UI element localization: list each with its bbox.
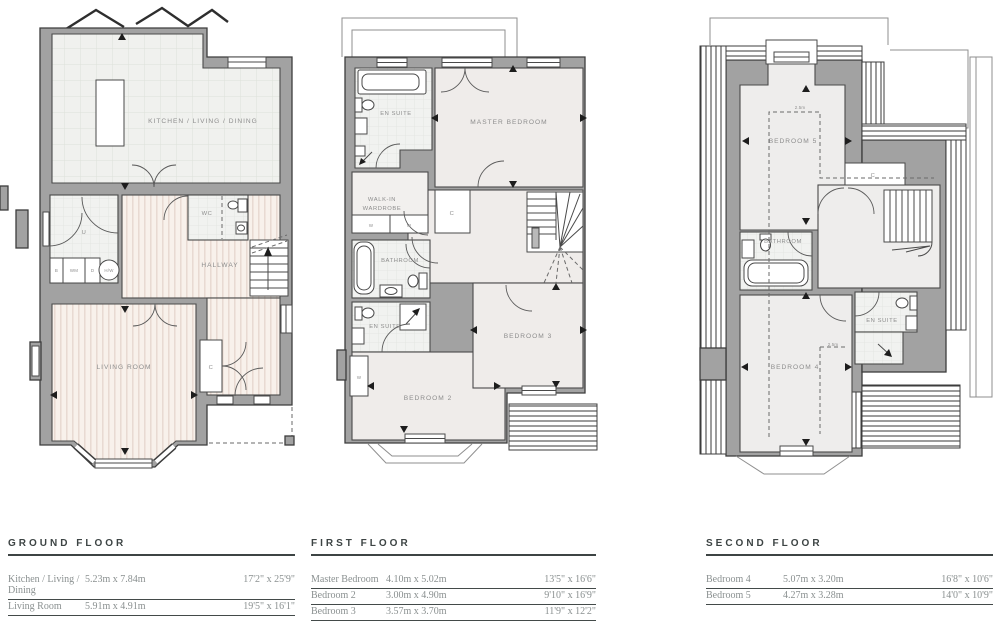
bedroom3-label: BEDROOM 3	[504, 333, 553, 340]
ground-floor-table-title: GROUND FLOOR	[8, 538, 295, 554]
room-size-metric: 3.00m x 4.90m	[386, 590, 504, 601]
walkin-label-1: WALK-IN	[368, 197, 396, 203]
table-row: Kitchen / Living / Dining 5.23m x 7.84m …	[8, 573, 295, 600]
bedroom4-label: BEDROOM 4	[771, 364, 820, 371]
floorplans-canvas: KITCHEN / LIVING / DINING U WC HALLWAY L…	[0, 0, 1002, 535]
roof-outline-below	[342, 18, 517, 57]
svg-text:H/W: H/W	[104, 268, 114, 273]
second-floor-table-title: SECOND FLOOR	[706, 538, 993, 554]
room-size-imperial: 17'2" x 25'9"	[203, 574, 295, 585]
room-name: Master Bedroom	[311, 574, 386, 585]
table-row: Master Bedroom 4.10m x 5.02m 13'5" x 16'…	[311, 573, 596, 589]
ensuite-mid-label: EN SUITE	[369, 324, 401, 330]
second-bay-outline	[736, 456, 850, 474]
table-rule	[8, 554, 295, 556]
room-name: Living Room	[8, 601, 85, 612]
room-size-metric: 4.10m x 5.02m	[386, 574, 504, 585]
bifold-doors-open	[66, 8, 228, 29]
bathroom-label: BATHROOM	[381, 258, 419, 264]
first-floor-plan: EN SUITE MASTER BEDROOM WALK-IN WARDROBE…	[337, 18, 597, 463]
first-closet-label: C	[450, 211, 455, 217]
ensuite-master-label: EN SUITE	[380, 111, 412, 117]
second-roof-outline-right	[878, 50, 968, 128]
svg-text:WM: WM	[70, 268, 78, 273]
room-size-imperial: 19'5" x 16'1"	[203, 601, 295, 612]
second-chimney	[700, 348, 726, 380]
room-size-metric: 5.23m x 7.84m	[85, 574, 203, 585]
flat-roof-hatch	[509, 404, 597, 450]
room-name: Kitchen / Living / Dining	[8, 574, 85, 596]
headroom-mid-label: 2.5m	[828, 342, 839, 347]
living-room-floor	[52, 304, 196, 460]
bedroom5-label: BEDROOM 5	[769, 138, 818, 145]
wc-label: WC	[202, 211, 213, 217]
utility-label: U	[82, 230, 87, 236]
room-name: Bedroom 2	[311, 590, 386, 601]
room-size-imperial: 9'10" x 16'9"	[504, 590, 596, 601]
svg-text:B: B	[55, 268, 58, 273]
table-row: Bedroom 2 3.00m x 4.90m 9'10" x 16'9"	[311, 589, 596, 605]
bedroom2-label: BEDROOM 2	[404, 395, 453, 402]
patio-outline	[209, 407, 294, 445]
ground-floor-table: GROUND FLOOR Kitchen / Living / Dining 5…	[8, 538, 295, 616]
bay-roof-outline	[368, 444, 482, 463]
table-row: Living Room 5.91m x 4.91m 19'5" x 16'1"	[8, 600, 295, 616]
table-row: Bedroom 3 3.57m x 3.70m 11'9" x 12'2"	[311, 605, 596, 621]
first-floor-table: FIRST FLOOR Master Bedroom 4.10m x 5.02m…	[311, 538, 596, 621]
headroom-top-label: 2.5m	[795, 105, 806, 110]
second-ensuite-label: EN SUITE	[866, 318, 898, 324]
neighbour-roof-outline	[970, 57, 992, 397]
second-closet-label: C	[871, 173, 876, 179]
table-rule	[706, 554, 993, 556]
table-row: Bedroom 4 5.07m x 3.20m 16'8" x 10'6"	[706, 573, 993, 589]
first-floor-table-title: FIRST FLOOR	[311, 538, 596, 554]
table-row: Bedroom 5 4.27m x 3.28m 14'0" x 10'9"	[706, 589, 993, 605]
table-rule	[311, 554, 596, 556]
living-room-label: LIVING ROOM	[97, 364, 152, 371]
room-size-imperial: 13'5" x 16'6"	[504, 574, 596, 585]
room-name: Bedroom 3	[311, 606, 386, 617]
second-ensuite-shower	[855, 332, 903, 364]
room-name: Bedroom 4	[706, 574, 783, 585]
room-name: Bedroom 5	[706, 590, 783, 601]
svg-text:W: W	[357, 375, 362, 380]
svg-text:D: D	[91, 268, 94, 273]
ground-closet-label: C	[209, 365, 214, 371]
room-size-imperial: 11'9" x 12'2"	[504, 606, 596, 617]
walkin-label-2: WARDROBE	[363, 206, 402, 212]
room-size-metric: 4.27m x 3.28m	[783, 590, 901, 601]
floorplan-sheet: KITCHEN / LIVING / DINING U WC HALLWAY L…	[0, 0, 1002, 626]
svg-text:W: W	[407, 223, 412, 228]
hallway-label: HALLWAY	[201, 262, 238, 269]
master-bedroom-label: MASTER BEDROOM	[470, 119, 547, 126]
room-size-imperial: 16'8" x 10'6"	[901, 574, 993, 585]
ground-stairs	[250, 235, 288, 296]
kitchen-island	[96, 80, 124, 146]
room-size-metric: 3.57m x 3.70m	[386, 606, 504, 617]
second-floor-plan: 2.5m BEDROOM 5 C BATHROOM EN SUITE 2.5m …	[700, 18, 992, 474]
kitchen-label: KITCHEN / LIVING / DINING	[148, 118, 258, 125]
room-size-imperial: 14'0" x 10'9"	[901, 590, 993, 601]
second-floor-table: SECOND FLOOR Bedroom 4 5.07m x 3.20m 16'…	[706, 538, 993, 605]
second-bathroom-label: BATHROOM	[764, 239, 802, 245]
svg-text:W: W	[369, 223, 374, 228]
meter-box	[0, 186, 8, 210]
porch-post	[16, 210, 28, 248]
ground-floor-plan: KITCHEN / LIVING / DINING U WC HALLWAY L…	[0, 8, 294, 468]
room-size-metric: 5.91m x 4.91m	[85, 601, 203, 612]
room-size-metric: 5.07m x 3.20m	[783, 574, 901, 585]
